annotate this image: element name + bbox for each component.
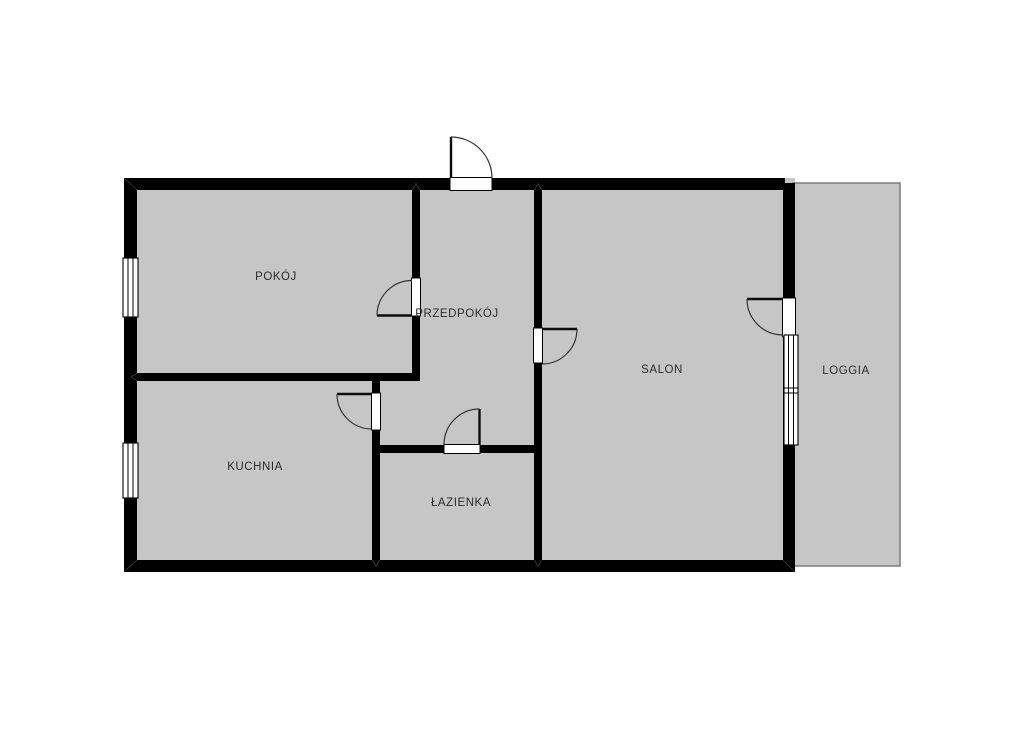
salon-door-opening [534, 328, 543, 363]
room-label-kuchnia: KUCHNIA [227, 461, 283, 473]
floorplan-svg: POKÓJ PRZEDPOKÓJ SALON KUCHNIA ŁAZIENKA … [0, 0, 1024, 749]
salon-loggia-window-frame [784, 335, 798, 445]
floorplan-canvas: POKÓJ PRZEDPOKÓJ SALON KUCHNIA ŁAZIENKA … [0, 0, 1024, 749]
lazienka-door-opening [444, 445, 480, 454]
room-label-salon: SALON [641, 364, 683, 376]
entrance-door-opening [450, 178, 492, 191]
room-label-loggia: LOGGIA [822, 365, 869, 377]
kuchnia-door-opening [372, 393, 381, 430]
room-label-pokoj: POKÓJ [255, 270, 297, 283]
pokoj-window-frame [123, 258, 138, 317]
kuchnia-window [123, 443, 138, 498]
wall-pokoj-kuchnia [137, 373, 420, 381]
pokoj-window [123, 258, 138, 317]
wall-przedpokoj-salon [534, 190, 542, 560]
entrance-door [451, 137, 492, 178]
loggia-door-opening [783, 298, 796, 337]
kuchnia-window-frame [123, 443, 138, 498]
room-label-lazienka: ŁAZIENKA [431, 497, 491, 509]
salon-loggia-window [784, 335, 798, 445]
entrance-door-arc [451, 137, 492, 178]
wall-exterior-bottom [124, 560, 795, 572]
room-label-przedpokoj: PRZEDPOKÓJ [415, 307, 498, 320]
